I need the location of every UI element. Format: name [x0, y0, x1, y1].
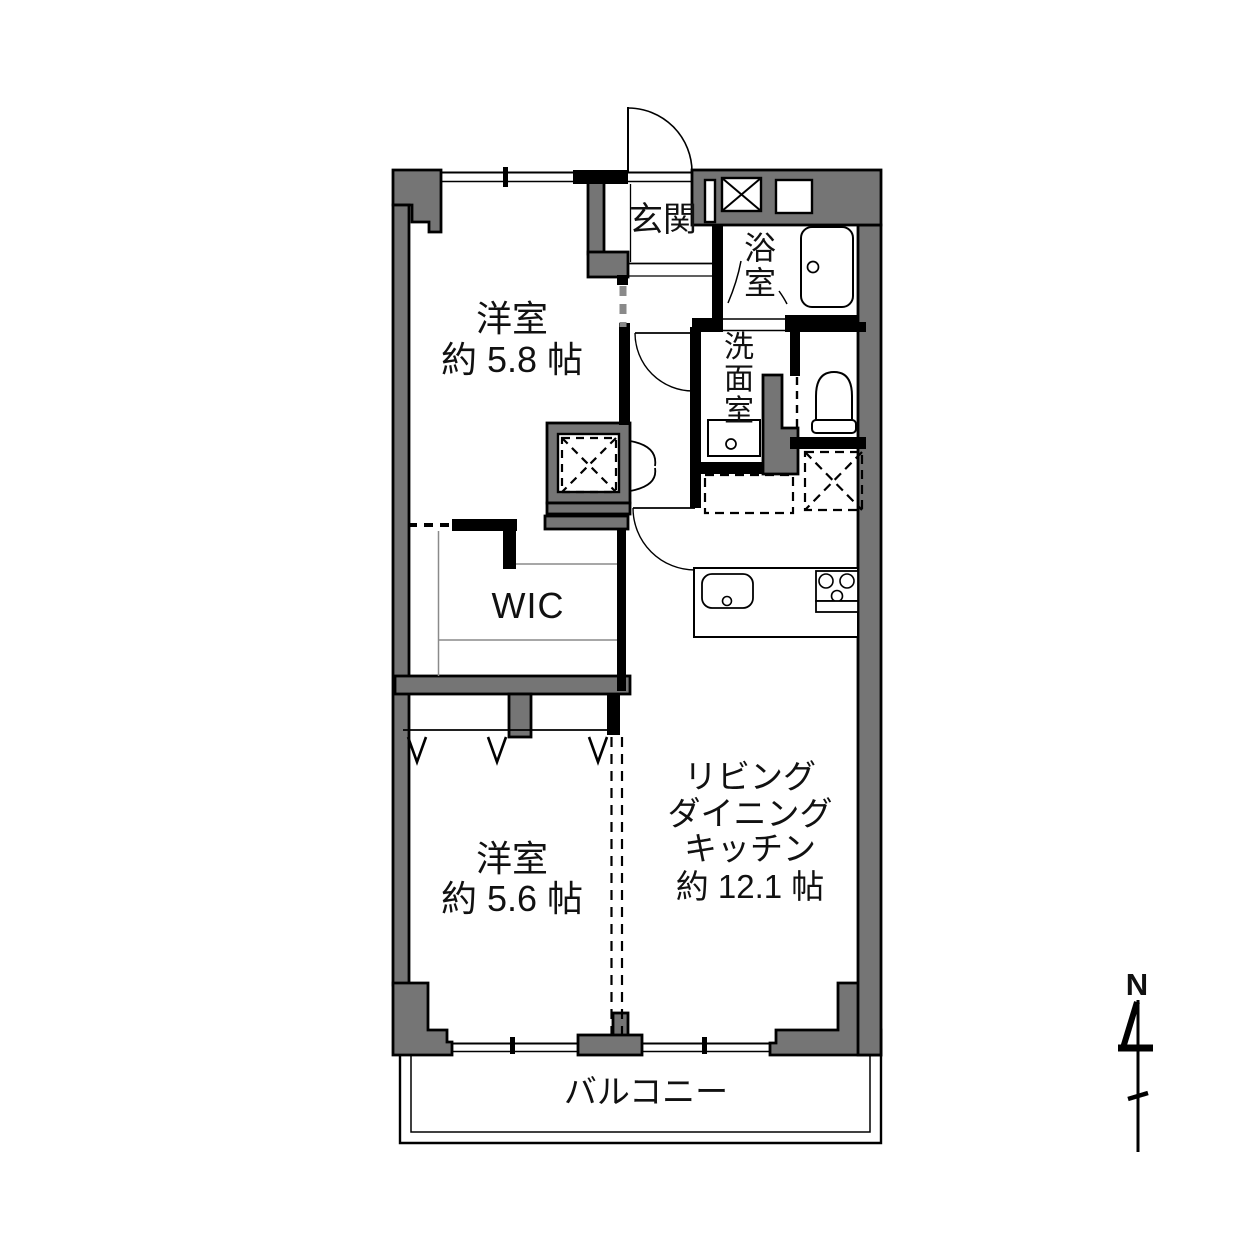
- door-arc-bedroom1: [635, 333, 693, 391]
- stove-icon: [816, 571, 858, 612]
- ldk-label-line4: 約 12.1 帖: [676, 868, 825, 905]
- wic-label: WIC: [492, 585, 565, 626]
- toilet-icon: [812, 372, 856, 433]
- appliance-space-box: [705, 475, 793, 513]
- ldk-label-line1: リビング: [684, 758, 816, 795]
- floor-plan: 洋室 約 5.8 帖 玄関 浴 室 洗 面 室 WIC 洋室 約 5.6 帖 リ…: [0, 0, 1252, 1252]
- washroom-label-char3: 室: [724, 395, 754, 428]
- kitchen-sink-icon: [702, 574, 753, 608]
- ldk-label-line3: キッチン: [684, 830, 816, 867]
- bedroom1-label: 洋室: [476, 298, 548, 339]
- entrance-label: 玄関: [629, 201, 697, 239]
- fridge-space-box: [805, 452, 862, 510]
- slot-box: [705, 180, 715, 222]
- north-arrow: N: [1118, 967, 1153, 1152]
- bathroom-label-char1: 浴: [744, 230, 776, 266]
- closet-hanger-icons: [408, 737, 607, 762]
- wall-pillar-bottomleft: [393, 983, 452, 1055]
- bedroom2-label: 洋室: [476, 838, 548, 879]
- wall-left: [393, 205, 409, 985]
- meter-box: [776, 180, 812, 213]
- folding-door-icon: [630, 441, 655, 491]
- wall-chase: [763, 375, 798, 474]
- washroom-label-char2: 面: [724, 363, 754, 396]
- door-arc-ldk: [633, 508, 695, 570]
- balcony-label: バルコニー: [564, 1073, 728, 1110]
- ldk-label-line2: ダイニング: [668, 795, 833, 832]
- wall-right: [858, 225, 881, 1055]
- bathroom-label-char2: 室: [744, 265, 776, 301]
- bedroom2-size: 約 5.6 帖: [441, 878, 583, 919]
- washroom-label-char1: 洗: [724, 331, 754, 364]
- compass-label: N: [1126, 967, 1148, 1002]
- bedroom1-size: 約 5.8 帖: [441, 339, 583, 380]
- bathtub-icon: [801, 227, 853, 307]
- entrance-door-arc: [628, 107, 692, 172]
